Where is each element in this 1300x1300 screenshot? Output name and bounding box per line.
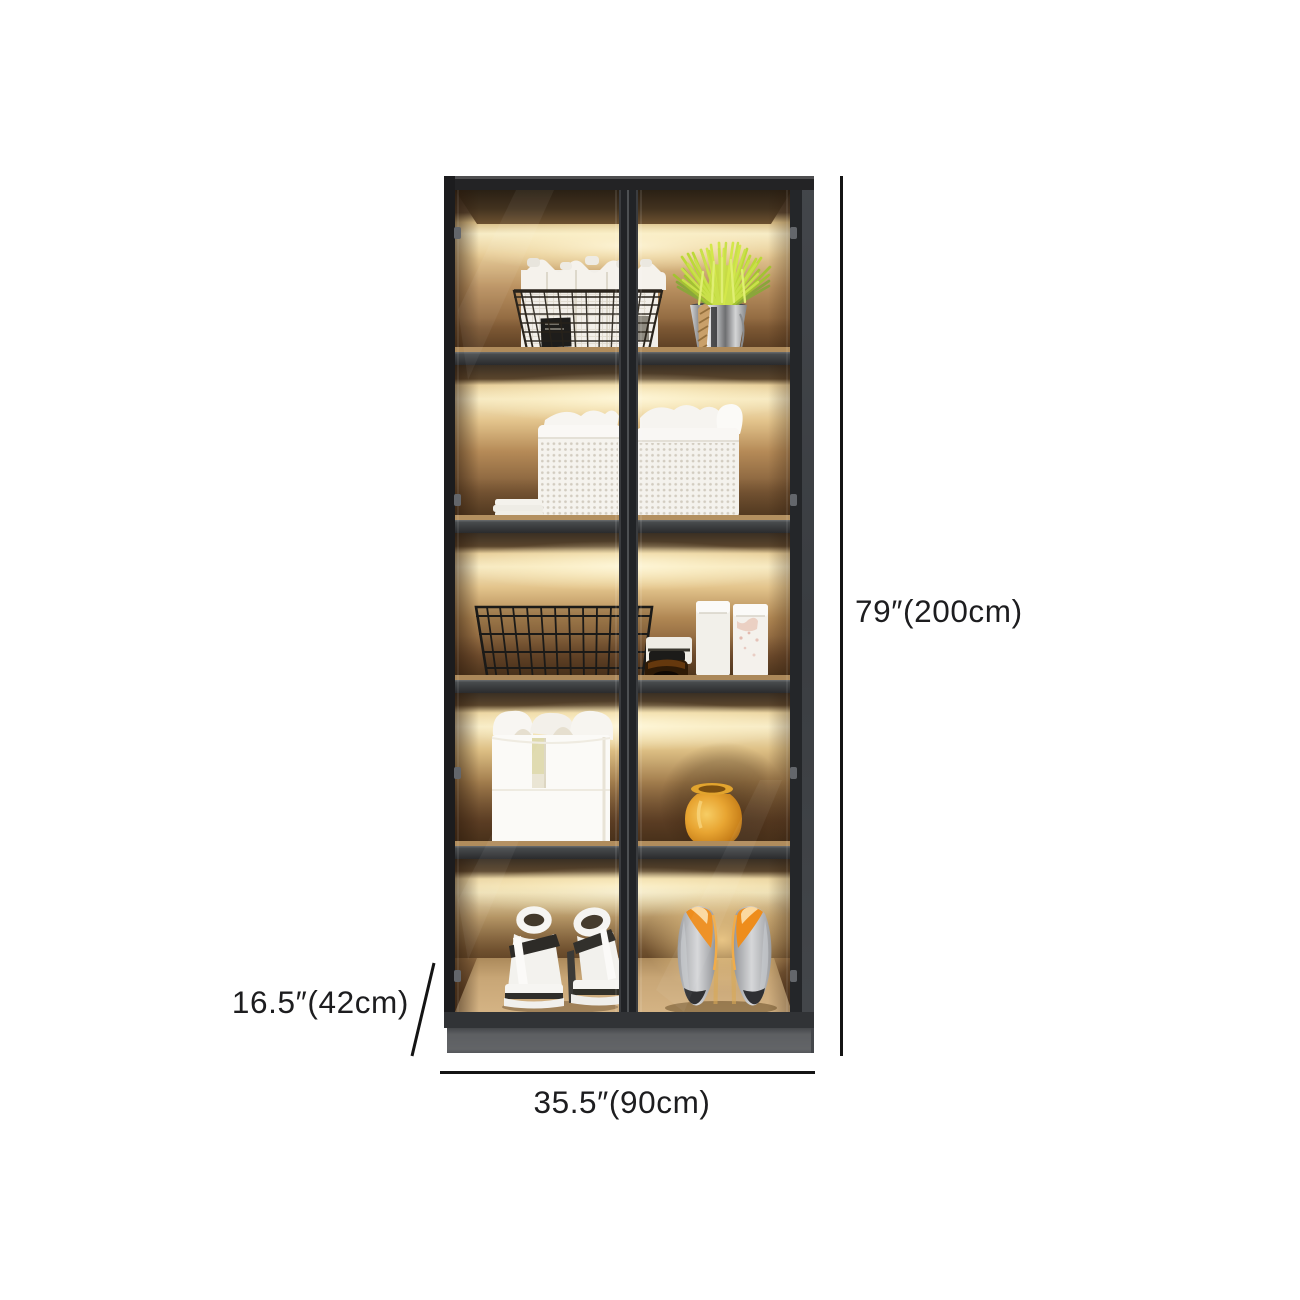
svg-text:35.5″(90cm): 35.5″(90cm) [533, 1084, 710, 1120]
svg-text:79″(200cm): 79″(200cm) [855, 593, 1023, 629]
svg-text:16.5″(42cm): 16.5″(42cm) [232, 984, 409, 1020]
